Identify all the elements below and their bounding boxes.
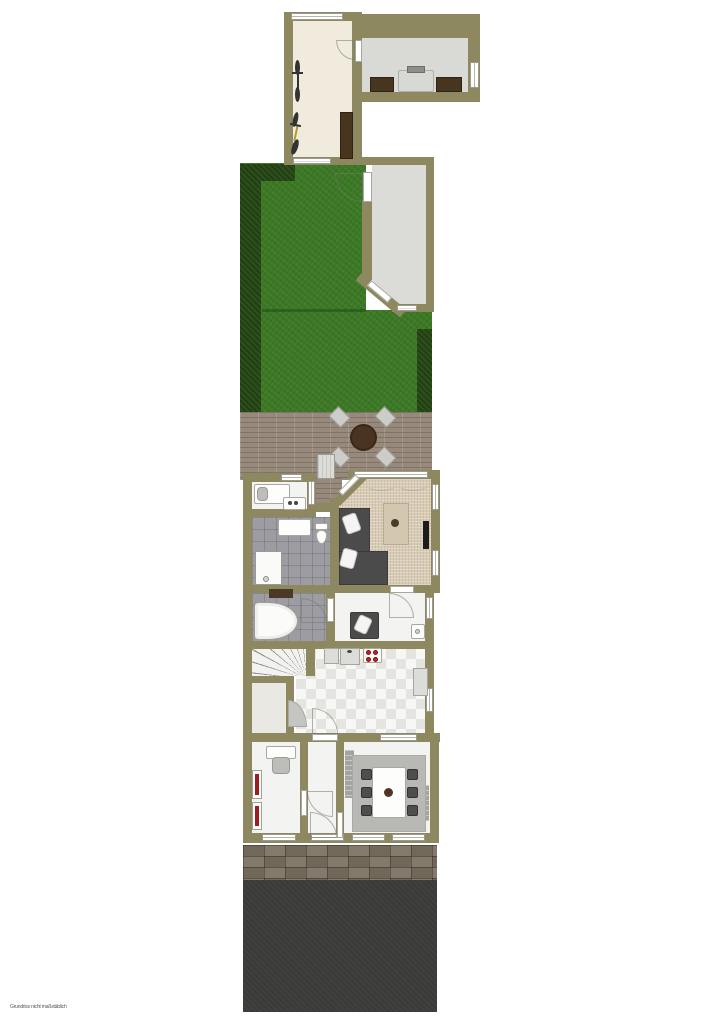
hedge-left <box>240 164 261 413</box>
shed-cabinet <box>340 112 353 159</box>
wall-passage-right <box>426 157 434 312</box>
door-entry <box>301 790 307 816</box>
wall-passage-top <box>362 157 434 165</box>
office-cabinet-left <box>370 77 394 92</box>
paving-strip <box>243 845 437 880</box>
bike-1-rear-wheel <box>295 87 300 102</box>
footer-disclaimer: Grundriss nicht maßstäblich <box>10 1004 67 1010</box>
hall-sink-drain <box>415 629 420 634</box>
window-south-1 <box>262 834 296 841</box>
dining-chair-left-1 <box>361 769 372 780</box>
toilet-tank <box>315 523 328 530</box>
dining-chair-right-2 <box>407 787 418 798</box>
washer-knob-2 <box>294 501 298 505</box>
stove-burner-1 <box>366 650 371 655</box>
window-office-right <box>470 62 479 88</box>
floor-plan: Grundriss nicht maßstäblich <box>0 0 724 1024</box>
door-bath2 <box>327 598 334 622</box>
dining-chair-right-3 <box>407 805 418 816</box>
dining-chair-left-3 <box>361 805 372 816</box>
wall-passage-left <box>362 200 372 282</box>
window-living-top <box>354 471 428 478</box>
garden-lower-lawn <box>240 310 432 414</box>
window-utility-top <box>281 474 302 481</box>
curtain-right <box>398 478 428 491</box>
kitchen-faucet <box>347 650 352 653</box>
wall-house-left <box>243 473 252 843</box>
wall-shed-left <box>284 12 293 165</box>
dining-decor-fruit <box>387 790 390 793</box>
window-shed-bottom <box>293 158 331 164</box>
living-rug-decor <box>391 519 399 527</box>
window-south-3 <box>352 834 385 841</box>
window-hall-right <box>426 597 433 619</box>
stove-burner-2 <box>373 650 378 655</box>
dining-chair-right-1 <box>407 769 418 780</box>
dishwasher <box>324 648 339 664</box>
door-shed-office <box>355 40 362 62</box>
garden-divider-line <box>262 309 366 312</box>
staircase <box>252 649 308 676</box>
patio-table <box>350 424 377 451</box>
wall-dining-right <box>430 742 439 843</box>
office-keyboard <box>407 66 425 73</box>
window-kitchen-bottom <box>380 734 417 741</box>
wall-utility-bottom <box>243 509 316 517</box>
dining-chair-left-2 <box>361 787 372 798</box>
wall-entry-right <box>300 742 308 834</box>
driveway-asphalt <box>243 880 437 1012</box>
wall-living-left <box>330 498 339 590</box>
wall-utility-top <box>243 473 316 482</box>
window-living-right-2 <box>432 550 439 576</box>
bath2-mat <box>269 589 293 598</box>
window-south-4 <box>392 834 425 841</box>
window-passage-bottom <box>397 305 417 311</box>
door-passage-garden <box>363 172 372 202</box>
terrace-bin <box>317 454 335 479</box>
bike-1-handlebar <box>292 72 303 74</box>
curtain-left <box>366 478 396 491</box>
radiator-1-core <box>255 774 259 795</box>
window-living-right-1 <box>432 484 439 510</box>
fridge <box>413 668 428 696</box>
door-kitchen-hall <box>312 734 338 741</box>
wall-stairs-bottom <box>243 676 294 683</box>
window-utility-right <box>308 481 315 505</box>
door-dining <box>337 812 343 838</box>
window-shed-top <box>291 13 343 20</box>
door-hall-living <box>390 586 414 593</box>
shower-drain <box>263 576 269 582</box>
entry-basin <box>272 757 290 774</box>
bathtub <box>278 519 311 536</box>
wall-office-bottom <box>352 92 480 102</box>
closet-floor <box>252 683 286 740</box>
hedge-right <box>417 329 432 413</box>
wall-stairs-right <box>306 649 315 676</box>
radiator-2-core <box>255 806 259 826</box>
washer-knob-1 <box>288 501 292 505</box>
wall-office-right <box>468 14 480 102</box>
stove-burner-3 <box>366 657 371 662</box>
wall-office-top <box>352 14 480 38</box>
office-desk <box>398 70 434 92</box>
office-cabinet-right <box>436 77 462 92</box>
utility-worktable-pad <box>257 487 268 501</box>
stove-burner-4 <box>373 657 378 662</box>
tv <box>423 521 429 549</box>
